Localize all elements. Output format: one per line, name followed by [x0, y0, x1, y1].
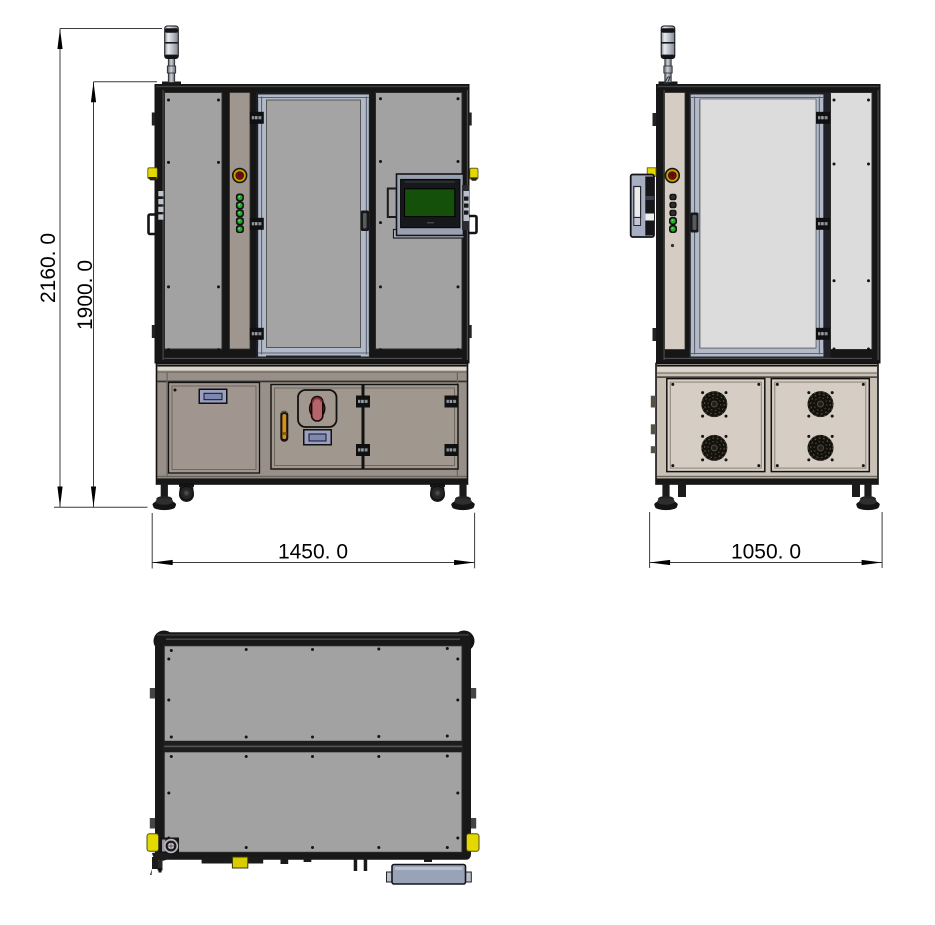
- svg-text:1050. 0: 1050. 0: [731, 541, 801, 564]
- svg-text:1450. 0: 1450. 0: [278, 541, 348, 564]
- svg-text:2160. 0: 2160. 0: [37, 233, 60, 303]
- svg-text:1900. 0: 1900. 0: [74, 260, 97, 330]
